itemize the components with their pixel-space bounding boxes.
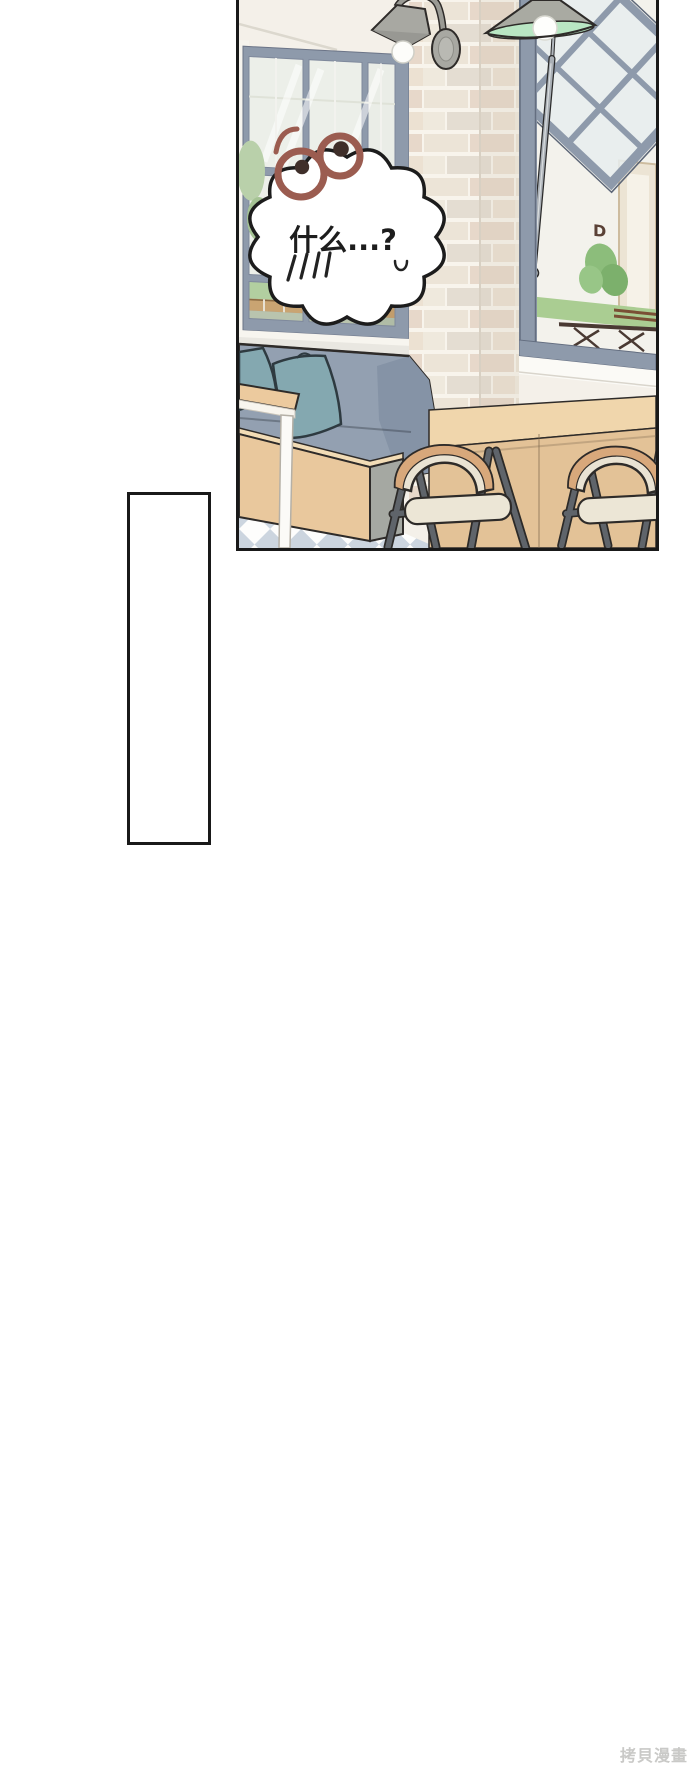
wall-lamp-bulb	[392, 41, 414, 63]
speech-bubble-text: 什么...?	[289, 223, 397, 257]
table-leg	[279, 415, 293, 548]
window-pillar	[519, 0, 537, 374]
cafe-scene: D	[239, 0, 656, 548]
comic-page: D	[0, 0, 690, 1775]
watermark: 拷貝漫畫	[620, 1742, 688, 1766]
empty-panel	[127, 492, 211, 845]
sign-letter: D	[593, 221, 606, 241]
main-panel: D	[236, 0, 659, 551]
bar-counter	[429, 396, 656, 548]
